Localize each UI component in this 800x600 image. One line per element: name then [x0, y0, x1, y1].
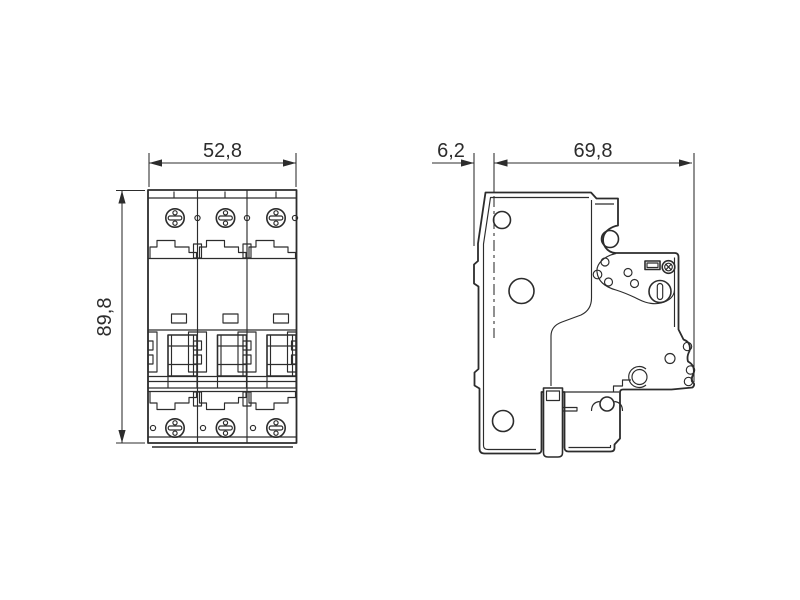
side-offset-dimension: 6,2	[432, 140, 474, 246]
offset-dimension-label: 6,2	[437, 140, 465, 162]
width-dimension-label: 52,8	[203, 140, 242, 162]
depth-dimension-label: 69,8	[574, 140, 613, 162]
arrowhead-right	[679, 159, 692, 166]
arrowhead-down	[118, 430, 125, 443]
technical-drawing-page: 52,8 89,8	[0, 0, 800, 600]
front-width-dimension: 52,8	[149, 140, 296, 187]
technical-drawing: 52,8 89,8	[0, 0, 800, 600]
arrowhead-left	[149, 159, 162, 166]
arrowhead-right	[283, 159, 296, 166]
arrowhead-left	[495, 159, 508, 166]
arrowhead-up	[118, 191, 125, 204]
height-dimension-label: 89,8	[94, 298, 116, 337]
keyhole-recess	[602, 231, 619, 248]
front-height-dimension: 89,8	[94, 191, 145, 444]
front-view: 52,8 89,8	[94, 140, 298, 447]
breaker-side-outline	[474, 193, 694, 454]
side-view: 6,2 69,8	[432, 140, 695, 457]
